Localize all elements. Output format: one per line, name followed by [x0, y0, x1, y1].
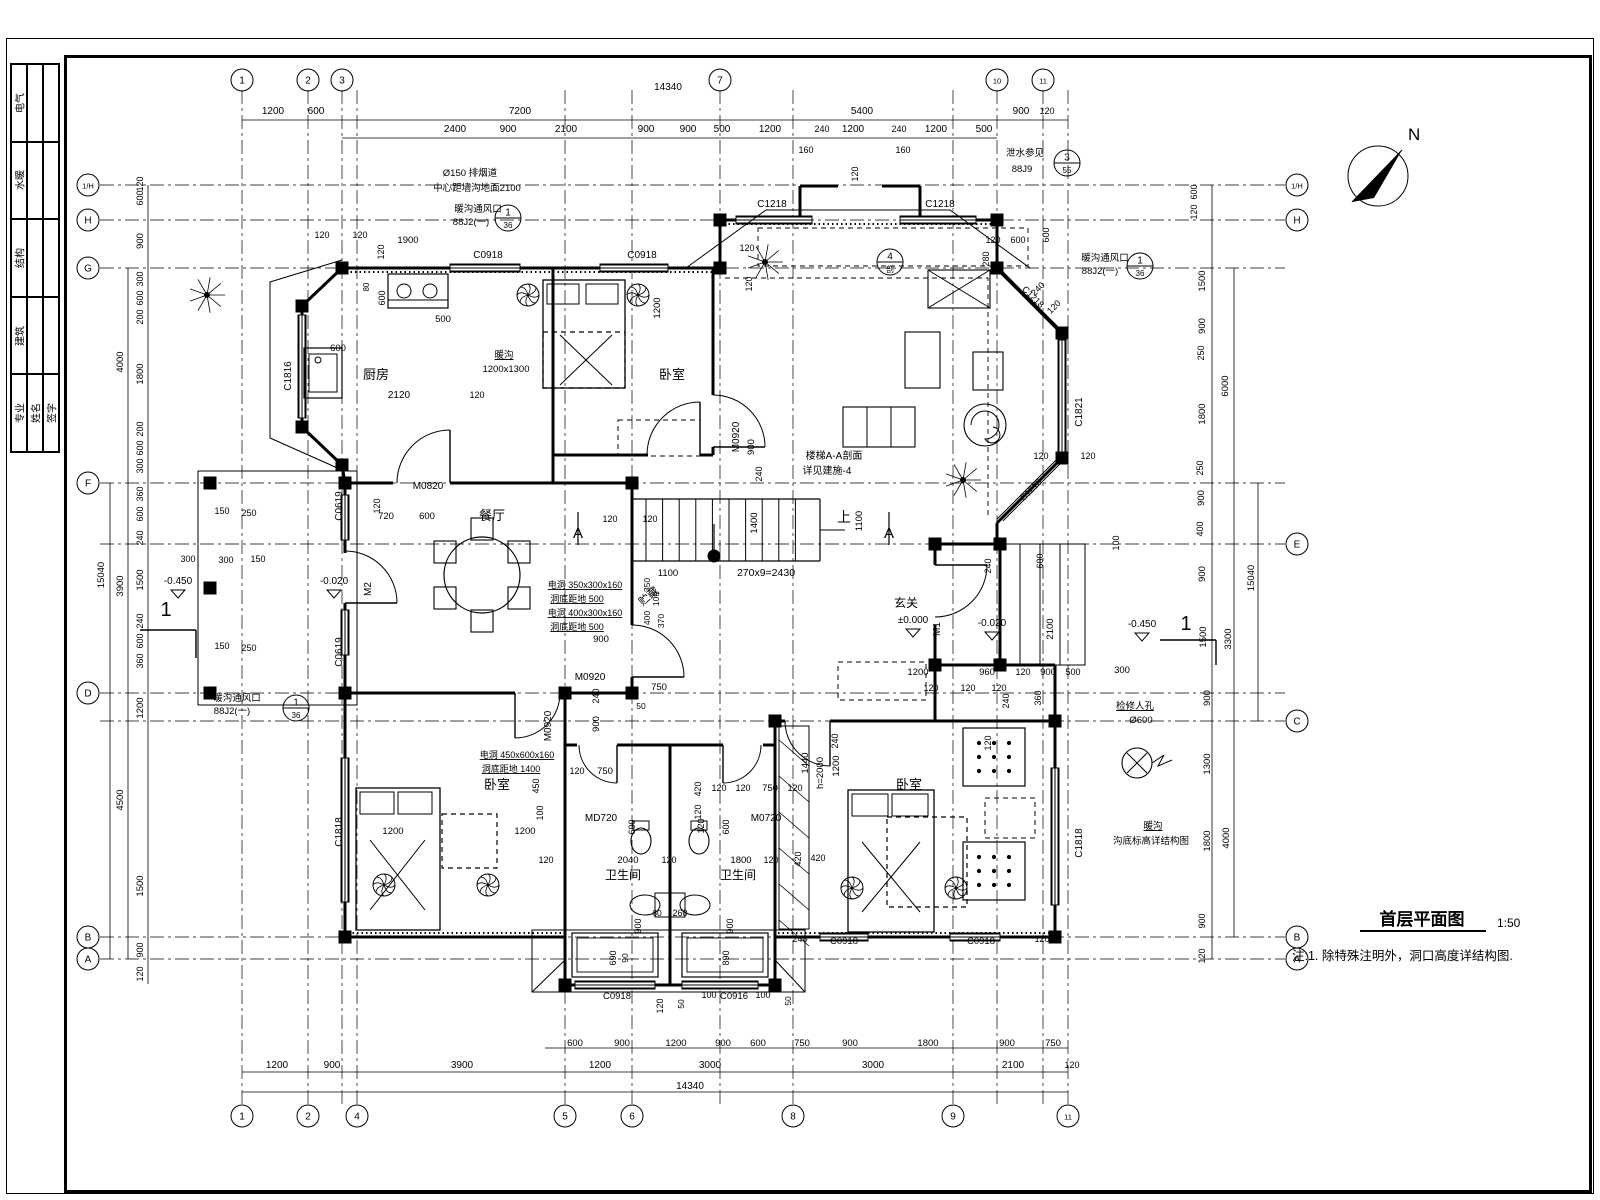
- titleblock-cell-2-0: 结构: [11, 219, 27, 297]
- titleblock-cell-1-1: [27, 142, 43, 220]
- titleblock-sign-0: 专业: [11, 374, 27, 452]
- titleblock-cell-0-1: [27, 64, 43, 142]
- drawing-sheet: 电气水暖结构建筑专业姓名签字 123710111245689111/HHGFDB…: [0, 0, 1600, 1200]
- titleblock-cell-0-0: 电气: [11, 64, 27, 142]
- titleblock-label: 结构: [12, 248, 27, 268]
- titleblock-cell-3-1: [27, 297, 43, 375]
- titleblock-cell-1-0: 水暖: [11, 142, 27, 220]
- signature-block: 电气水暖结构建筑专业姓名签字: [10, 63, 60, 453]
- titleblock-cell-2-1: [27, 219, 43, 297]
- titleblock-cell-2-2: [43, 219, 59, 297]
- titleblock-sign-2: 签字: [43, 374, 59, 452]
- titleblock-label: 电气: [12, 93, 27, 113]
- titleblock-label: 建筑: [12, 326, 27, 346]
- titleblock-cell-3-0: 建筑: [11, 297, 27, 375]
- drawing-frame: [64, 55, 1592, 1193]
- titleblock-label: 签字: [44, 403, 59, 423]
- titleblock-sign-1: 姓名: [27, 374, 43, 452]
- titleblock-cell-0-2: [43, 64, 59, 142]
- titleblock-label: 专业: [12, 403, 27, 423]
- titleblock-label: 姓名: [28, 403, 43, 423]
- titleblock-cell-1-2: [43, 142, 59, 220]
- titleblock-label: 水暖: [12, 170, 27, 190]
- titleblock-cell-3-2: [43, 297, 59, 375]
